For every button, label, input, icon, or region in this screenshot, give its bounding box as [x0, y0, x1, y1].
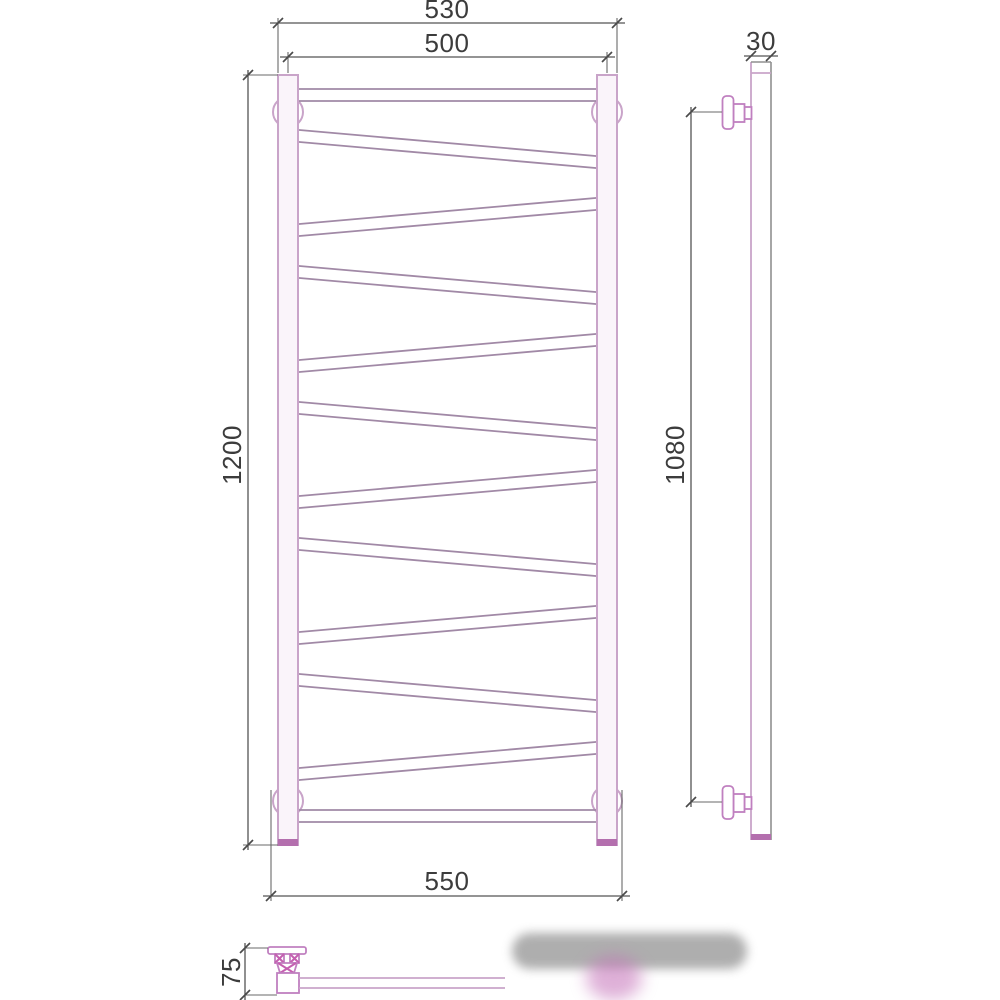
tube-line [288, 673, 607, 701]
dimension-30: 30 [744, 26, 778, 61]
tube-line [288, 345, 607, 373]
dimension-label-500: 500 [425, 28, 470, 58]
side-top-bracket [723, 96, 752, 129]
blurred-watermark-smudge-pink [586, 956, 642, 1000]
bracket-stem [734, 794, 745, 812]
technical-drawing: 530 500 1200 550 [0, 0, 1000, 1000]
tube-line [288, 617, 607, 645]
dimension-label-30: 30 [746, 26, 776, 56]
bracket-flange [723, 786, 734, 819]
tube-line [288, 129, 607, 157]
dimension-500: 500 [280, 28, 615, 73]
dimension-label-530: 530 [425, 0, 470, 24]
tube-line [288, 413, 607, 441]
right-post-end-cap [597, 839, 617, 846]
tube-line [288, 141, 607, 169]
tube-line [288, 333, 607, 361]
dimension-label-1080: 1080 [660, 425, 690, 485]
bracket-flange [723, 96, 734, 129]
tube-line [288, 481, 607, 509]
side-bar-end-cap [751, 834, 771, 840]
tube-line [288, 537, 607, 565]
tube-line [288, 685, 607, 713]
bracket-stem-step [745, 107, 752, 119]
drawing-canvas: 530 500 1200 550 [0, 0, 1000, 1000]
wall-plate [268, 947, 306, 954]
zigzag-tubes [288, 89, 607, 822]
bracket-stem [734, 104, 745, 122]
side-bar-body [751, 62, 771, 840]
tube-line [288, 277, 607, 305]
dimension-label-75: 75 [216, 957, 246, 987]
tube-line [288, 753, 607, 781]
tube-line [288, 197, 607, 225]
tube-line [288, 265, 607, 293]
dimension-label-550: 550 [425, 866, 470, 896]
dimension-label-1200: 1200 [217, 425, 247, 485]
tube-line [288, 209, 607, 237]
plan-detail: 75 [216, 943, 505, 1000]
post-block-plan [277, 973, 299, 993]
tube-line [288, 549, 607, 577]
side-bottom-bracket [723, 786, 752, 819]
tube-line [288, 605, 607, 633]
tube-line [288, 741, 607, 769]
right-post [597, 75, 617, 845]
bracket-stem-step [745, 797, 752, 809]
side-view: 30 1080 [660, 26, 778, 840]
tube-line [288, 469, 607, 497]
left-post [278, 75, 298, 845]
dimension-1080: 1080 [660, 107, 722, 807]
front-view: 530 500 1200 550 [217, 0, 630, 901]
dimension-550: 550 [263, 790, 630, 901]
tube-line [288, 401, 607, 429]
dimension-1200: 1200 [217, 70, 278, 850]
left-post-end-cap [278, 839, 298, 846]
